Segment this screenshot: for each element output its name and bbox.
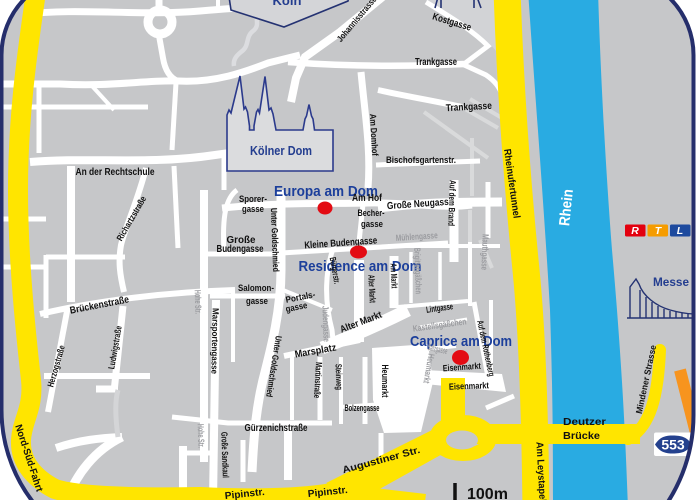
svg-text:Kölner Dom: Kölner Dom bbox=[250, 143, 312, 158]
svg-text:Messe: Messe bbox=[653, 277, 689, 289]
svg-text:L: L bbox=[677, 225, 683, 237]
svg-text:Judengasse: Judengasse bbox=[320, 306, 331, 342]
svg-text:Bischofsgartenstr.: Bischofsgartenstr. bbox=[386, 155, 456, 165]
svg-text:Caprice am Dom: Caprice am Dom bbox=[410, 333, 512, 350]
svg-text:R: R bbox=[631, 225, 639, 237]
svg-text:Mauthgasse: Mauthgasse bbox=[479, 234, 490, 270]
svg-text:Deutzer: Deutzer bbox=[563, 417, 606, 428]
svg-text:Sporer-: Sporer- bbox=[239, 194, 267, 204]
svg-text:An der Rechtschule: An der Rechtschule bbox=[76, 167, 155, 178]
svg-text:Budengasse: Budengasse bbox=[217, 244, 264, 255]
svg-text:Hohe Str.: Hohe Str. bbox=[193, 290, 204, 314]
svg-text:Gürzenichstraße: Gürzenichstraße bbox=[245, 423, 308, 434]
svg-text:Hohe Str.: Hohe Str. bbox=[196, 424, 207, 448]
svg-text:Residence am Dom: Residence am Dom bbox=[299, 258, 422, 275]
svg-text:Salomon-: Salomon- bbox=[238, 283, 274, 293]
svg-text:Am Hof: Am Hof bbox=[352, 193, 383, 204]
svg-text:Marsportengasse: Marsportengasse bbox=[209, 308, 220, 374]
svg-text:Becher-: Becher- bbox=[358, 208, 385, 218]
svg-text:gasse: gasse bbox=[246, 296, 268, 306]
svg-text:Steinweg: Steinweg bbox=[334, 364, 345, 390]
svg-text:Brücke: Brücke bbox=[563, 431, 600, 442]
svg-text:Eisenmarkt: Eisenmarkt bbox=[449, 380, 489, 391]
svg-text:553: 553 bbox=[661, 437, 685, 453]
svg-text:gasse: gasse bbox=[242, 204, 264, 214]
svg-text:Köln: Köln bbox=[273, 0, 302, 8]
svg-text:100m: 100m bbox=[467, 486, 508, 500]
svg-text:Bolzengasse: Bolzengasse bbox=[345, 403, 380, 413]
svg-text:Heumarkt: Heumarkt bbox=[380, 365, 390, 398]
svg-text:gasse: gasse bbox=[361, 219, 383, 229]
svg-text:Brigittengäßchen: Brigittengäßchen bbox=[412, 248, 424, 294]
svg-text:Trankgasse: Trankgasse bbox=[415, 57, 457, 68]
svg-text:Große Sandkaul: Große Sandkaul bbox=[219, 432, 231, 478]
svg-text:Am Markt: Am Markt bbox=[388, 263, 399, 288]
svg-text:Alter Markt: Alter Markt bbox=[366, 275, 377, 303]
svg-text:Martinstraße: Martinstraße bbox=[312, 362, 324, 398]
